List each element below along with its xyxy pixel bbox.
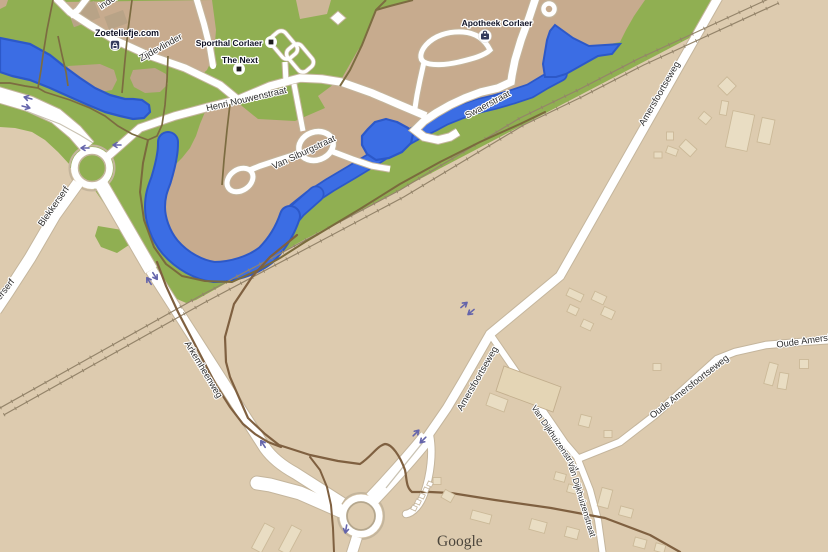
svg-text:Apotheek Corlaer: Apotheek Corlaer [462, 18, 534, 28]
svg-text:Zoeteliefje.com: Zoeteliefje.com [95, 28, 159, 38]
svg-text:Google: Google [437, 533, 483, 550]
svg-text:Sporthal Corlaer: Sporthal Corlaer [196, 38, 263, 48]
svg-text:The Next: The Next [222, 55, 258, 65]
